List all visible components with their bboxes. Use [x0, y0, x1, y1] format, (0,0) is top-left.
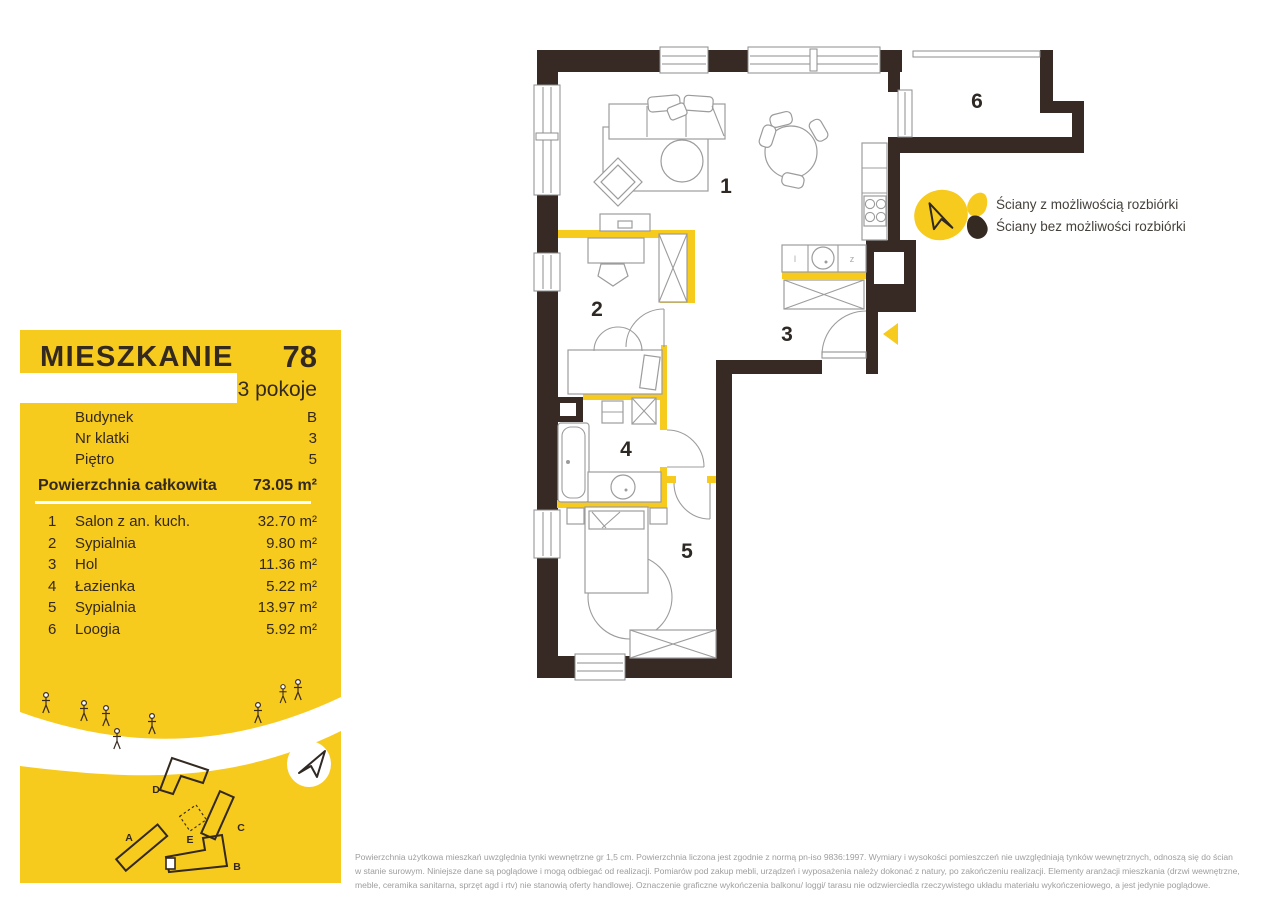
panel-header: MIESZKANIE 78: [20, 330, 341, 373]
room-label-6: 6: [971, 90, 983, 113]
nightstand-right: [650, 508, 667, 524]
door-room2: [626, 309, 664, 347]
pillow: [589, 511, 644, 529]
room-label-2: 2: [591, 298, 603, 321]
info-label: Piętro: [75, 449, 114, 470]
disclaimer-line: Powierzchnia użytkowa mieszkań uwzględni…: [355, 851, 1275, 865]
door-bathroom: [667, 430, 704, 467]
svg-text:l: l: [794, 254, 796, 264]
walls-legend: Ściany z możliwością rozbiórki Ściany be…: [912, 186, 1212, 246]
legend-demolishable-label: Ściany z możliwością rozbiórki: [996, 197, 1178, 212]
window-top-1: [660, 47, 708, 73]
apartment-number: 78: [283, 341, 317, 373]
door-entrance: [822, 311, 866, 355]
sink: [812, 247, 834, 269]
loggia-balustrade: [913, 51, 1040, 57]
info-row-staircase: Nr klatki 3: [20, 428, 341, 449]
coffee-table: [661, 140, 703, 182]
disclaimer-line: w stanie surowym. Niniejsze dane są pogl…: [355, 865, 1275, 879]
compass-blob: [912, 186, 972, 246]
window-left-3: [534, 510, 560, 558]
entrance-door-leaf: [822, 352, 866, 358]
info-label: Budynek: [75, 407, 133, 428]
entrance-marker-icon: [883, 323, 898, 345]
building-info: Budynek B Nr klatki 3 Piętro 5: [20, 407, 341, 470]
info-value: 3: [309, 428, 317, 449]
room-label-3: 3: [781, 323, 793, 346]
desk-chair: [598, 264, 628, 286]
room-label-5: 5: [681, 540, 693, 563]
furniture-room2: [568, 234, 687, 394]
info-value: 5: [309, 449, 317, 470]
info-row-floor: Piętro 5: [20, 449, 341, 470]
bathtub: [558, 423, 589, 502]
room-label-1: 1: [720, 175, 732, 198]
info-row-building: Budynek B: [20, 407, 341, 428]
info-value: B: [307, 407, 317, 428]
bathroom-sink: [611, 475, 635, 499]
legend-non-demolishable-label: Ściany bez możliwości rozbiórki: [996, 219, 1186, 234]
nightstand-left: [567, 508, 584, 524]
floorplan-sheet: { "colors": { "accent_yellow": "#f7ca1e"…: [0, 0, 1280, 905]
window-left-2: [534, 253, 560, 291]
door-room5: [674, 483, 710, 519]
furniture-room5: [567, 507, 716, 658]
info-label: Nr klatki: [75, 428, 129, 449]
headboard-arc: [594, 327, 642, 351]
disclaimer: Powierzchnia użytkowa mieszkań uwzględni…: [355, 851, 1275, 892]
disclaimer-line: meble, ceramika sanitarna, sprzęt agd i …: [355, 879, 1275, 893]
rooms-count: 3 pokoje: [20, 373, 341, 403]
window-bottom: [575, 654, 625, 680]
desk: [588, 238, 644, 263]
room-label-4: 4: [620, 438, 632, 461]
furniture-salon: [594, 95, 830, 231]
apartment-title: MIESZKANIE: [40, 341, 234, 373]
svg-text:z: z: [850, 254, 855, 264]
